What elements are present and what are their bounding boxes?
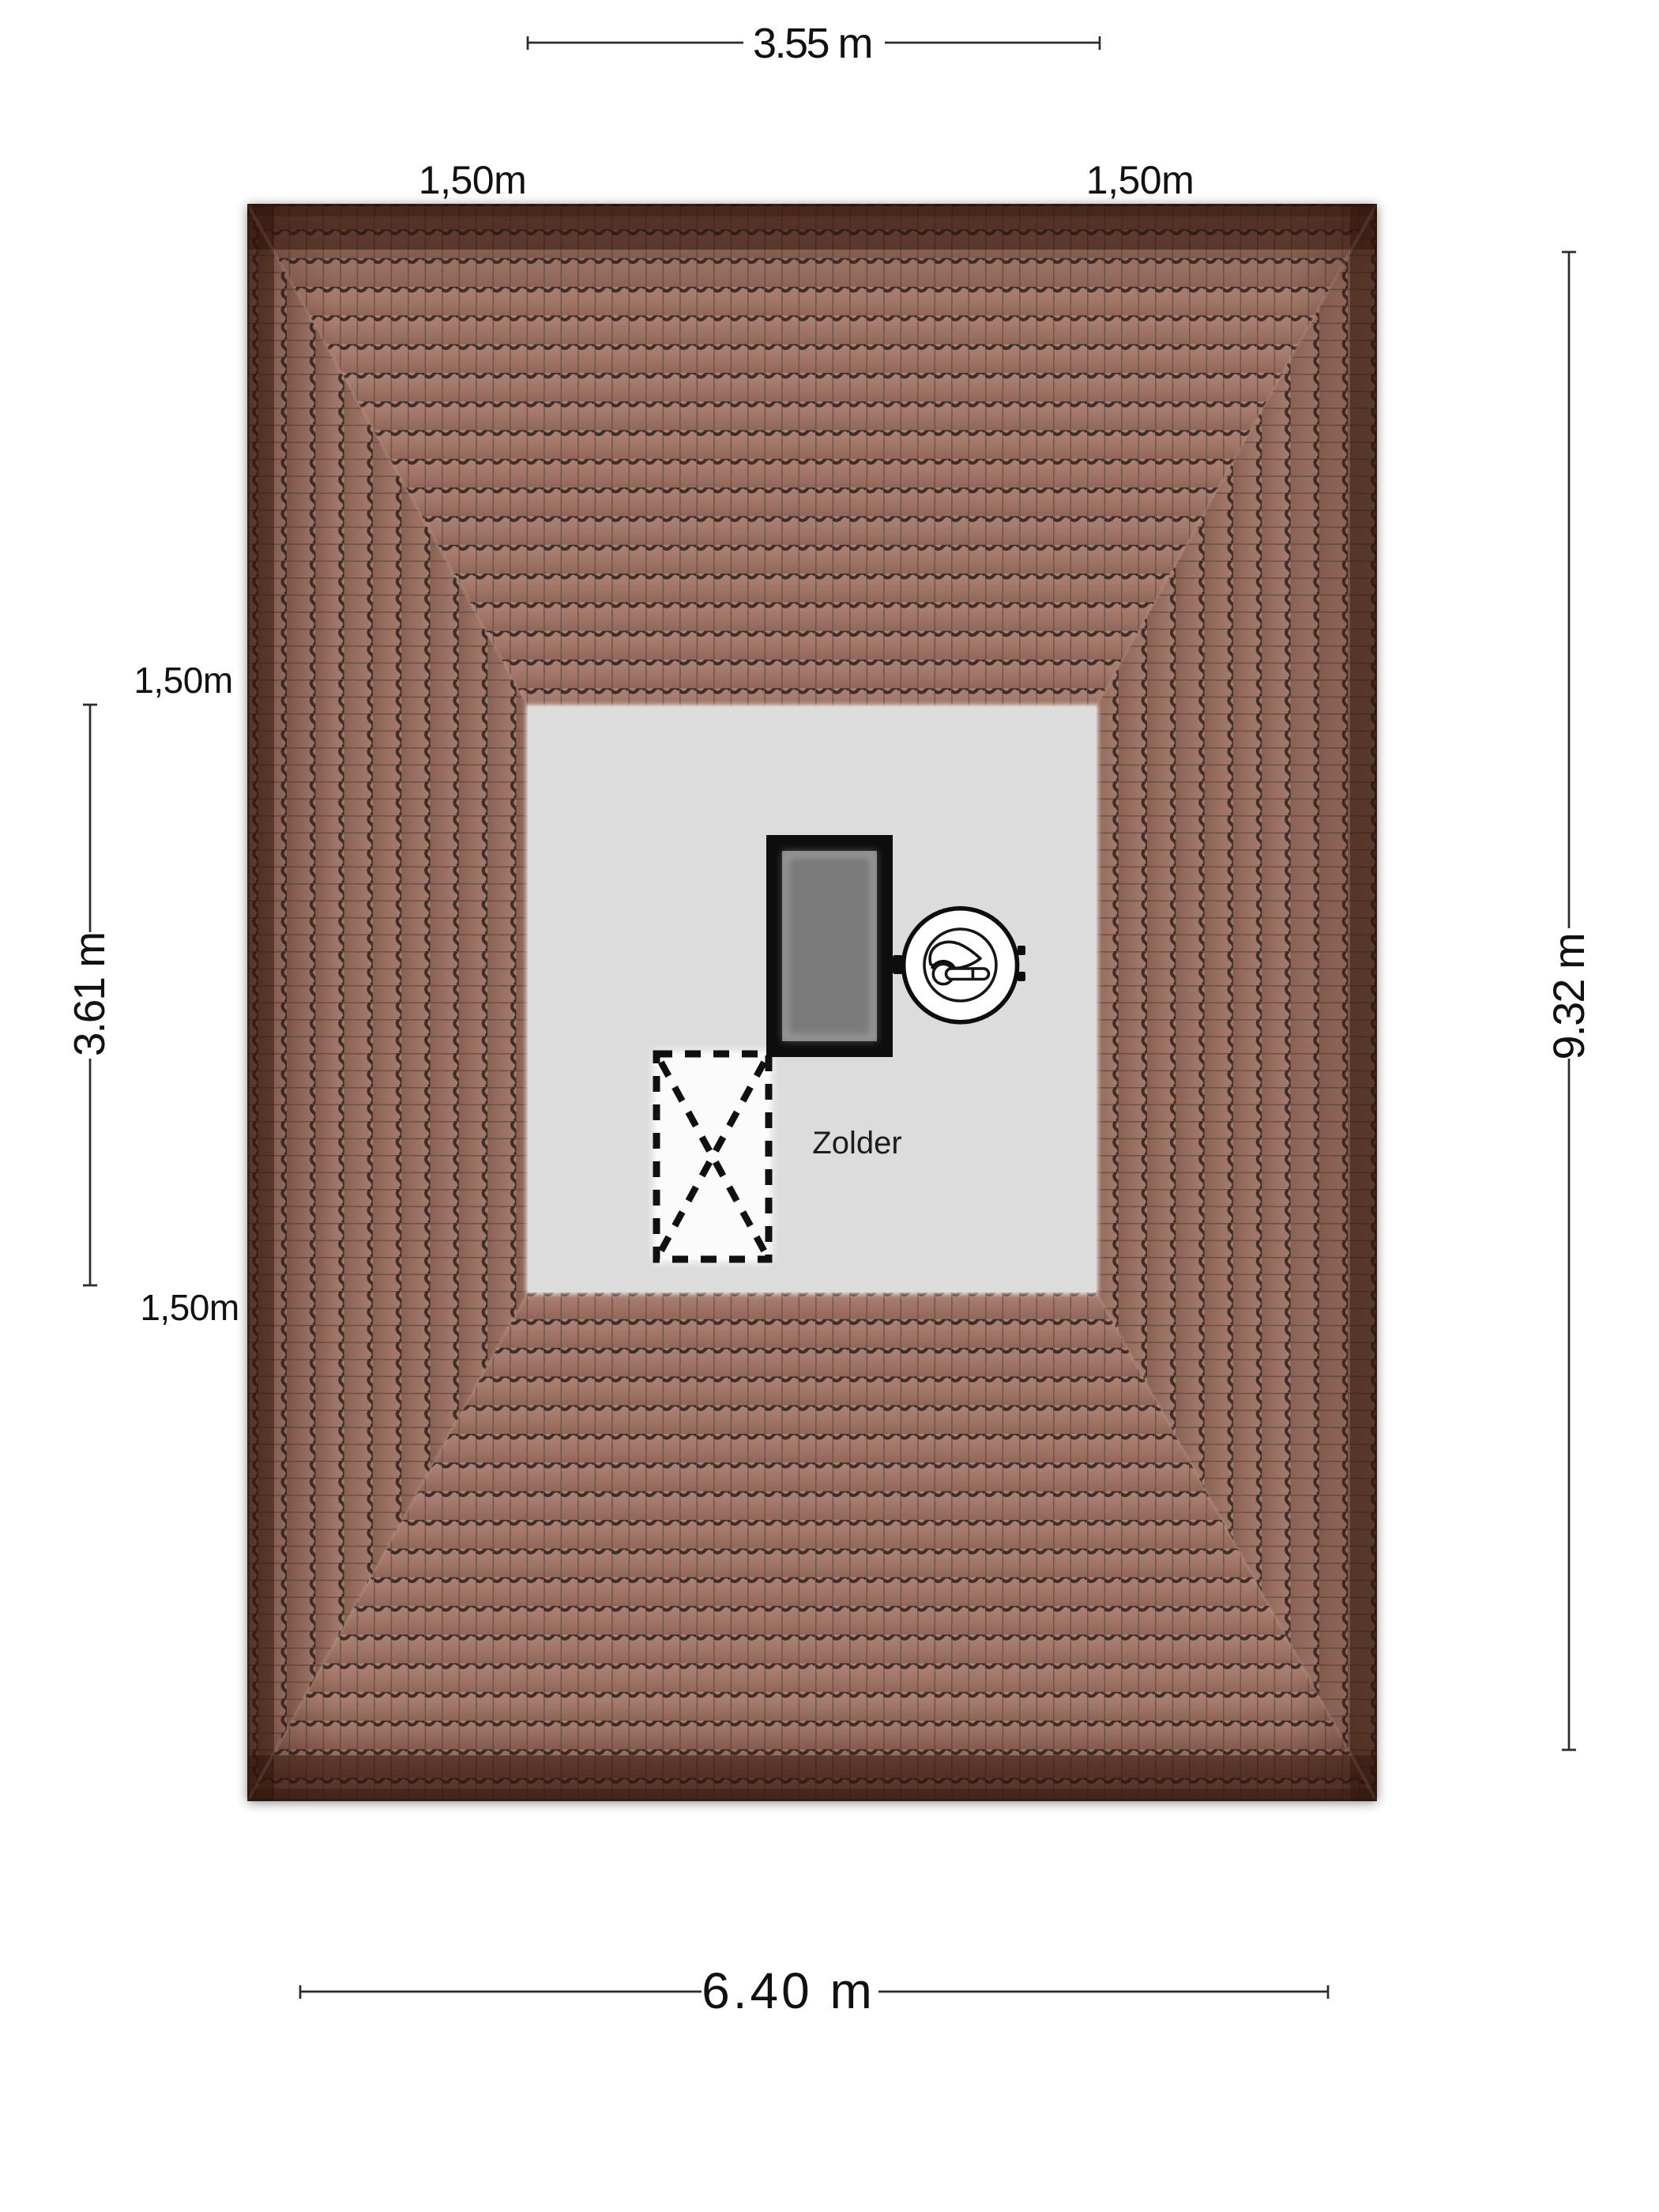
svg-text:9.32 m: 9.32 m	[1544, 934, 1593, 1059]
svg-text:1,50m: 1,50m	[134, 660, 232, 701]
svg-text:6.40 m: 6.40 m	[702, 1962, 875, 2019]
svg-text:3.55 m: 3.55 m	[753, 20, 871, 67]
svg-text:1,50m: 1,50m	[140, 1287, 239, 1328]
svg-text:3.61 m: 3.61 m	[65, 933, 114, 1056]
svg-text:1,50m: 1,50m	[419, 158, 526, 202]
svg-text:Zolder: Zolder	[812, 1126, 901, 1161]
svg-text:1,50m: 1,50m	[1086, 158, 1194, 202]
